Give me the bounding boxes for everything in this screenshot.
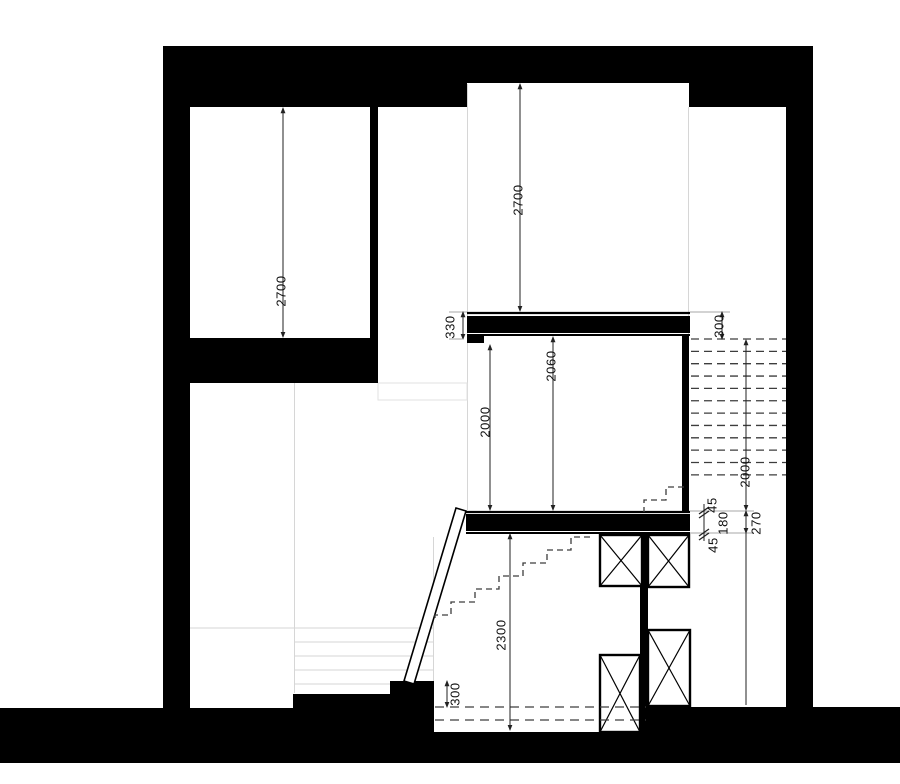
hidden-upper-steps-outline (644, 487, 684, 512)
floor-step-1 (293, 694, 434, 710)
section-linework (0, 0, 900, 784)
top-wall (163, 46, 813, 83)
dim-label-beam-core: 180 (717, 511, 730, 535)
left-room-floor-band (190, 338, 378, 383)
top-wall-downstand-left (163, 82, 467, 107)
right-wall (786, 46, 813, 708)
beam-end-nib (467, 336, 484, 343)
interior-wall (370, 107, 378, 338)
dim-label-trim-bottom: 45 (707, 537, 720, 553)
hidden-treads (691, 339, 786, 475)
dim-label-balustrade-opening: 2060 (545, 350, 558, 381)
lower-beam (458, 512, 690, 533)
stairwell-side-wall (682, 336, 689, 511)
floor-left (0, 708, 434, 734)
cut-walls (0, 46, 900, 763)
dim-label-beam-total: 270 (750, 511, 763, 535)
floor-right (648, 707, 900, 734)
left-wall (163, 46, 190, 708)
dim-label-flight-run: 2000 (739, 456, 752, 487)
dim-label-beam-edge: 330 (444, 315, 457, 339)
cabinet-box-upper-left (600, 535, 642, 586)
dim-label-clear-opening: 2000 (479, 406, 492, 437)
dim-label-lower-room-height: 2300 (495, 619, 508, 650)
bottom-slab (0, 732, 900, 763)
stair-stringer (404, 508, 466, 684)
dim-label-hall-height: 2700 (512, 184, 525, 215)
top-wall-downstand-right (689, 82, 786, 107)
dim-label-first-riser: 300 (713, 314, 726, 338)
cabinet-box-upper-right (648, 535, 689, 587)
upper-beam (467, 313, 690, 343)
dim-label-left-room-height: 2700 (275, 275, 288, 306)
hidden-stair-flight-outline (435, 537, 590, 622)
architectural-section-drawing: 2700 2700 330 300 2060 2000 2000 45 180 … (0, 0, 900, 784)
dim-label-floor-step: 300 (449, 682, 462, 706)
background-faint-lines (190, 84, 689, 730)
cabinet-box-lower-right (648, 630, 690, 706)
